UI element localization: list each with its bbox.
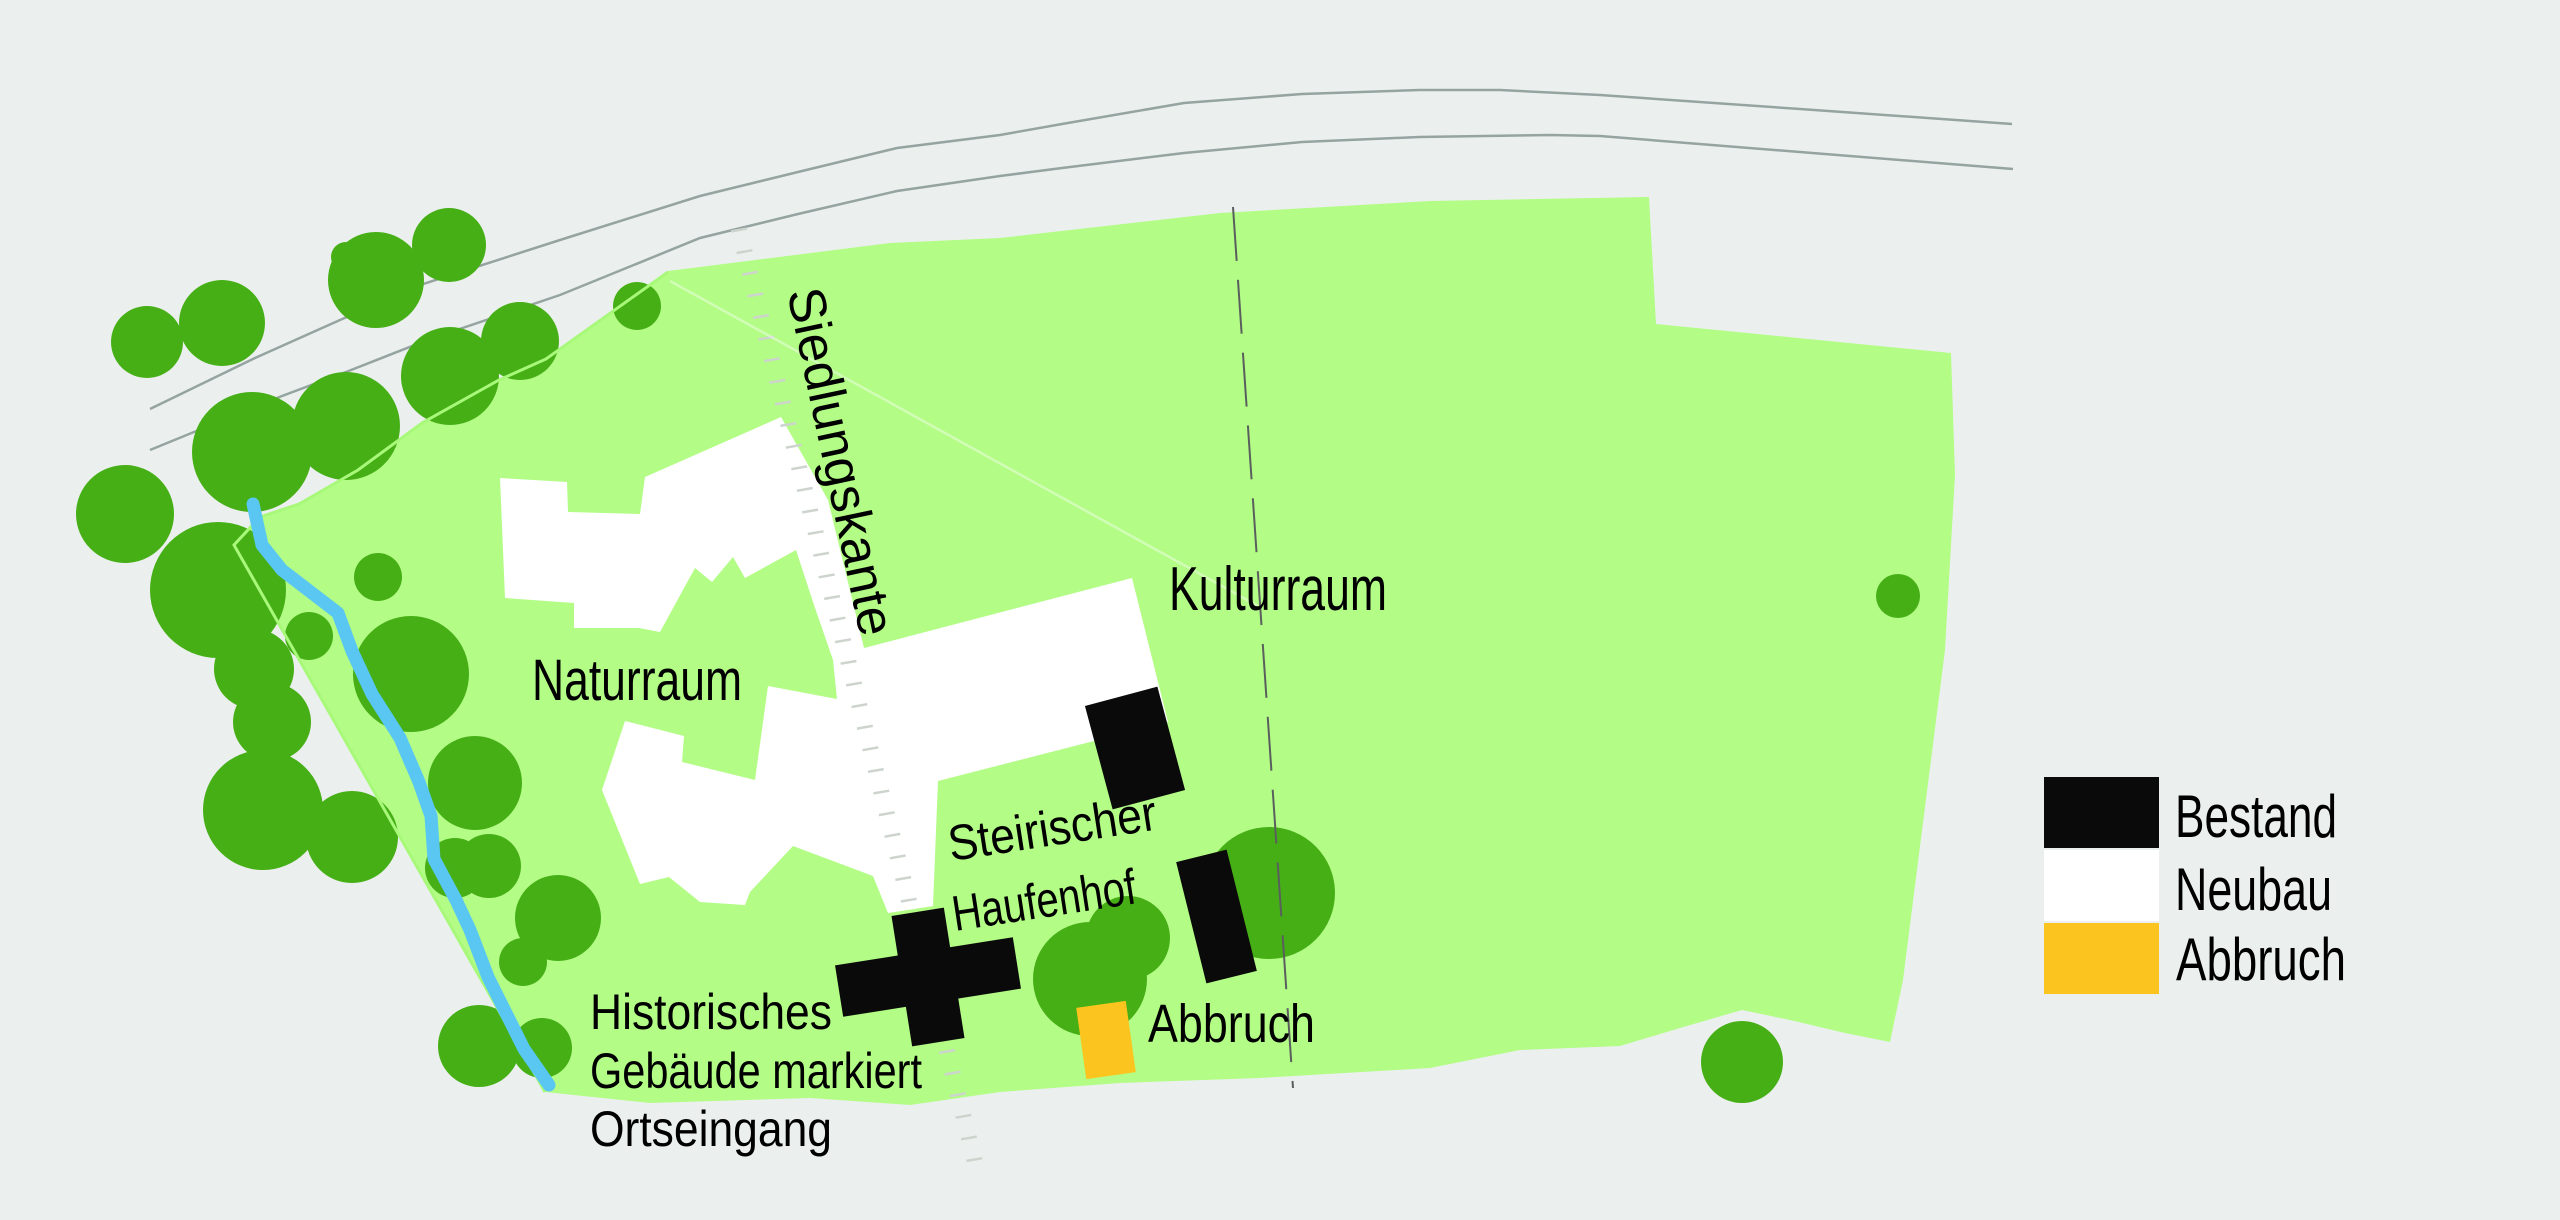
svg-text:Naturraum: Naturraum [532,648,742,713]
svg-text:Historisches: Historisches [590,984,832,1040]
svg-text:Abbruch: Abbruch [2176,926,2346,993]
svg-text:Gebäude markiert: Gebäude markiert [590,1043,922,1099]
svg-text:Abbruch: Abbruch [1148,994,1315,1054]
svg-text:Neubau: Neubau [2175,856,2332,923]
svg-text:Bestand: Bestand [2175,783,2337,850]
svg-text:Ortseingang: Ortseingang [590,1101,832,1157]
svg-text:Kulturraum: Kulturraum [1169,555,1387,624]
